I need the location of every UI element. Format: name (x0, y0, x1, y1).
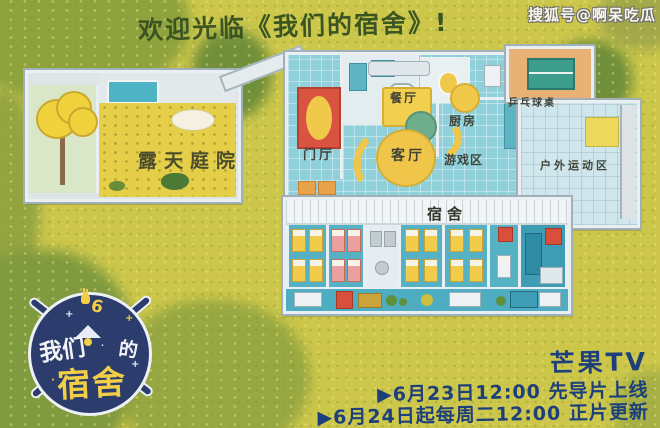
dorm-room (401, 225, 442, 287)
bed (309, 259, 323, 282)
storage-box (545, 228, 562, 245)
foyer-label: 门厅 (303, 144, 335, 163)
foyer-rug (297, 87, 341, 149)
dorm-room (490, 225, 518, 287)
shower (370, 231, 382, 247)
bed (405, 259, 419, 282)
dorm-room (289, 225, 326, 287)
plant (421, 294, 433, 306)
common-room (521, 225, 565, 287)
bed (497, 255, 511, 278)
desk (540, 267, 563, 284)
kitchen-label: 厨房 (449, 112, 477, 129)
bed (347, 259, 361, 282)
pool (107, 80, 159, 104)
courtyard-bush (161, 173, 189, 190)
sparkle-icon: + (65, 309, 73, 320)
bed (424, 259, 438, 282)
living-label: 客厅 (391, 145, 425, 165)
bed (309, 229, 323, 252)
door-mat (298, 181, 316, 195)
plant (386, 295, 397, 306)
dining-counter (368, 61, 430, 76)
bed (424, 229, 438, 252)
logo-circle: 6 我们 的 宿舍 + + + · · (28, 292, 152, 416)
bed (469, 229, 483, 252)
sparkle-icon: · (51, 375, 55, 386)
kitchen-table (450, 83, 480, 113)
dorm-corridor-sign: 宿舍 (286, 200, 568, 225)
dining-label: 餐厅 (390, 89, 418, 106)
storage-box (498, 227, 513, 242)
door-mat (318, 181, 336, 195)
tree-foliage-icon (68, 107, 98, 137)
bed (450, 259, 464, 282)
plant (496, 296, 506, 306)
dorm-room (445, 225, 487, 287)
sink (384, 231, 396, 247)
bed (292, 259, 306, 282)
dorm-bathroom (366, 225, 398, 287)
channel-name: 芒果TV (316, 342, 648, 384)
outdoor-label: 户外运动区 (540, 157, 610, 173)
pingpong-label: 乒乓球桌 (508, 94, 556, 109)
shelf (358, 293, 382, 308)
hand-gesture-icon (81, 293, 90, 304)
dorm-room (329, 225, 363, 287)
exercise-mat (585, 117, 619, 147)
window (294, 292, 322, 307)
game-area-label: 游戏区 (444, 151, 483, 168)
bed (292, 229, 306, 252)
broadcast-info: 芒果TV ▶6月23日12:00 先导片上线 ▶6月24日起每周二12:00 正… (316, 342, 649, 428)
tree-trunk (60, 133, 65, 185)
dorm-building: 宿舍 (283, 197, 571, 314)
watermark: 搜狐号@啊呆吃瓜 (528, 4, 656, 25)
logo-text-dorm: 宿舍 (56, 355, 128, 407)
bed (469, 259, 483, 282)
picture-frame (449, 292, 481, 307)
courtyard-label: 露天庭院 (138, 146, 242, 173)
bed (450, 229, 464, 252)
fridge (484, 65, 501, 87)
main-building (285, 52, 526, 206)
pillar-strip (620, 105, 635, 219)
bed (405, 229, 419, 252)
dorm-hallway (286, 289, 568, 311)
sink (349, 63, 367, 91)
show-logo: 6 我们 的 宿舍 + + + · · (14, 282, 170, 424)
pond (171, 109, 215, 131)
courtyard-building (25, 70, 241, 202)
pingpong-table (527, 58, 575, 90)
toilet (375, 261, 389, 275)
red-door (336, 291, 353, 309)
sparkle-icon: + (131, 359, 139, 370)
tree-room (30, 85, 99, 193)
courtyard-walkway (99, 73, 236, 103)
picture-frame (539, 292, 561, 307)
cabinet (510, 291, 538, 308)
bed (331, 259, 345, 282)
plant (399, 298, 407, 306)
sparkle-icon: · (101, 341, 104, 350)
sparkle-icon: + (125, 313, 133, 324)
poster: 欢迎光临《我们的宿舍》! 搜狐号@啊呆吃瓜 (0, 0, 660, 428)
courtyard-bush (109, 181, 125, 191)
dorm-label: 宿舍 (427, 203, 467, 224)
bed (347, 229, 361, 252)
schedule-line-2: ▶6月24日起每周二12:00 正片更新 (317, 401, 649, 428)
bed (331, 229, 345, 252)
logo-number: 6 (89, 296, 105, 318)
